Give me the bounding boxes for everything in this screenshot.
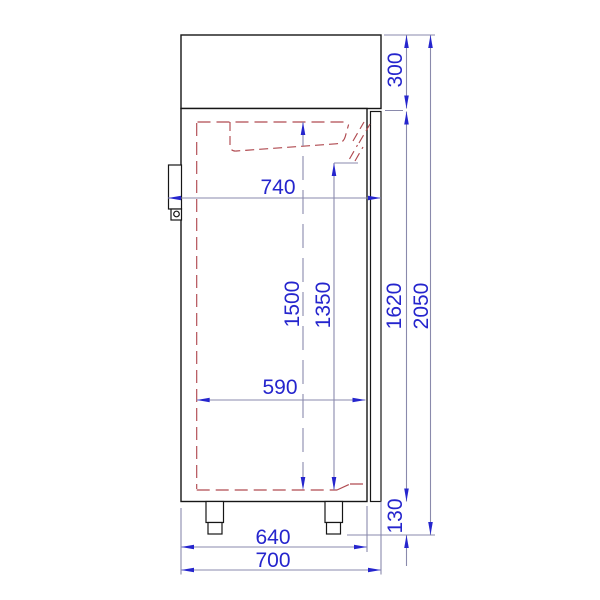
top-compressor-box xyxy=(181,35,381,109)
label-door-height: 1620 xyxy=(383,283,406,330)
cabinet-structure xyxy=(169,35,382,534)
back-foot-upper xyxy=(325,502,343,523)
arrow-130-bottom xyxy=(404,535,409,548)
label-feet-height: 130 xyxy=(384,498,407,533)
label-body-depth: 640 xyxy=(255,526,290,549)
front-foot-lower xyxy=(208,523,222,535)
front-foot-upper xyxy=(206,502,224,523)
front-foot xyxy=(206,502,224,535)
label-interior-depth: 590 xyxy=(262,376,297,399)
door-panel xyxy=(371,112,382,502)
cabinet-technical-drawing: 300 1620 2050 130 1500 1350 740 590 640 … xyxy=(0,0,600,600)
arrow-2050-top xyxy=(428,35,433,48)
arrow-1620-top xyxy=(404,112,409,125)
arrow-700-right xyxy=(368,568,381,573)
back-foot-lower xyxy=(327,523,341,535)
arrow-300-bottom xyxy=(404,96,409,109)
cabinet-body xyxy=(181,109,367,502)
label-interior-height-front: 1350 xyxy=(312,282,335,329)
hinge-bracket-body xyxy=(169,165,182,209)
hinge-pin-hole xyxy=(174,211,180,217)
label-overall-height: 2050 xyxy=(410,283,433,330)
back-foot xyxy=(325,502,343,535)
arrow-700-left xyxy=(181,568,194,573)
label-depth-with-hinge: 740 xyxy=(260,176,295,199)
arrow-640-left xyxy=(181,545,194,550)
label-depth-with-door: 700 xyxy=(255,549,290,572)
arrow-2050-bottom xyxy=(428,522,433,535)
drawing-canvas: 300 1620 2050 130 1500 1350 740 590 640 … xyxy=(0,0,600,600)
arrow-300-top xyxy=(404,35,409,48)
hinge-bracket xyxy=(169,165,182,220)
arrow-640-right xyxy=(354,545,367,550)
label-top-section-height: 300 xyxy=(384,52,407,87)
label-interior-height: 1500 xyxy=(281,281,304,328)
